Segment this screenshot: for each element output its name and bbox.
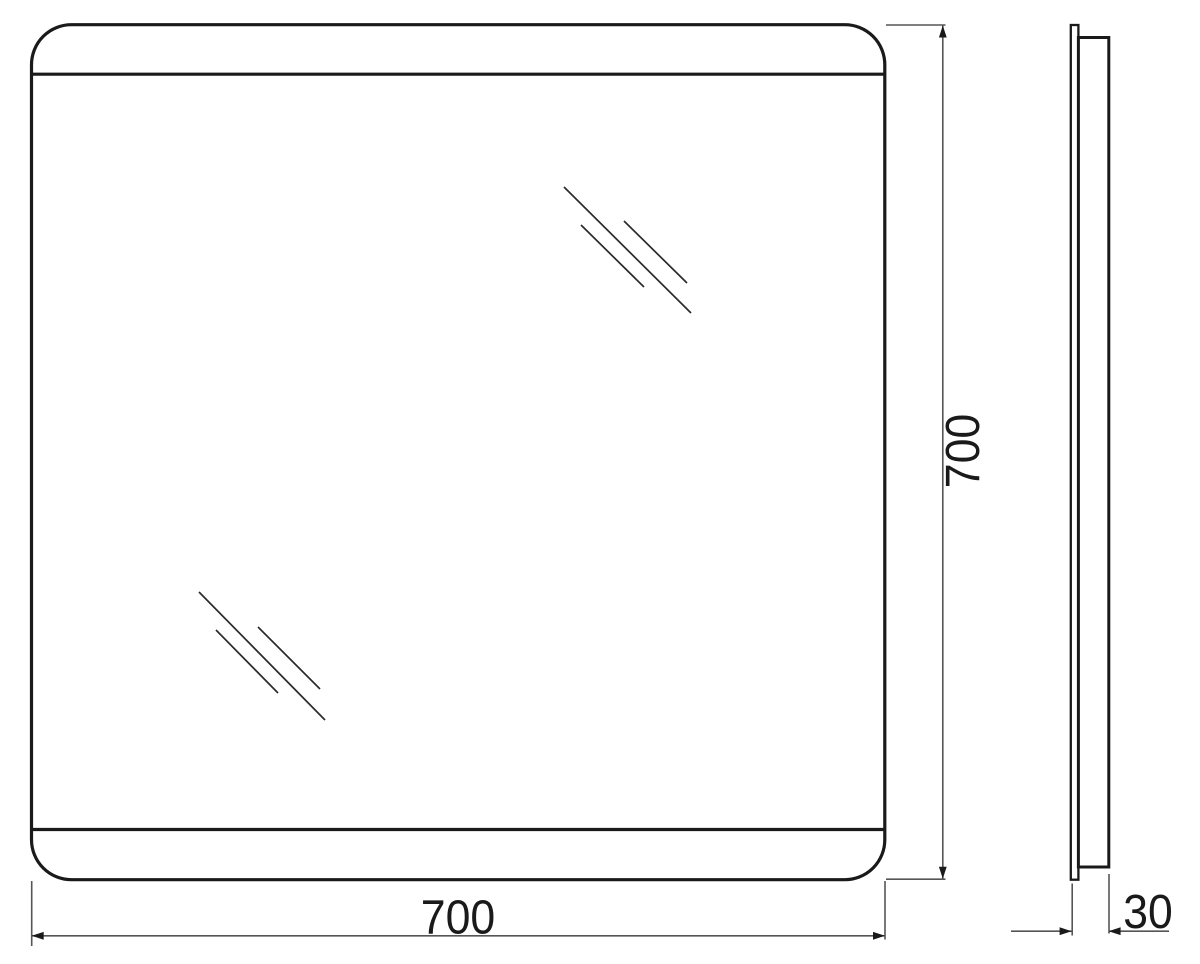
svg-text:700: 700 xyxy=(937,414,990,489)
svg-text:700: 700 xyxy=(421,892,496,945)
svg-text:30: 30 xyxy=(1123,886,1173,939)
